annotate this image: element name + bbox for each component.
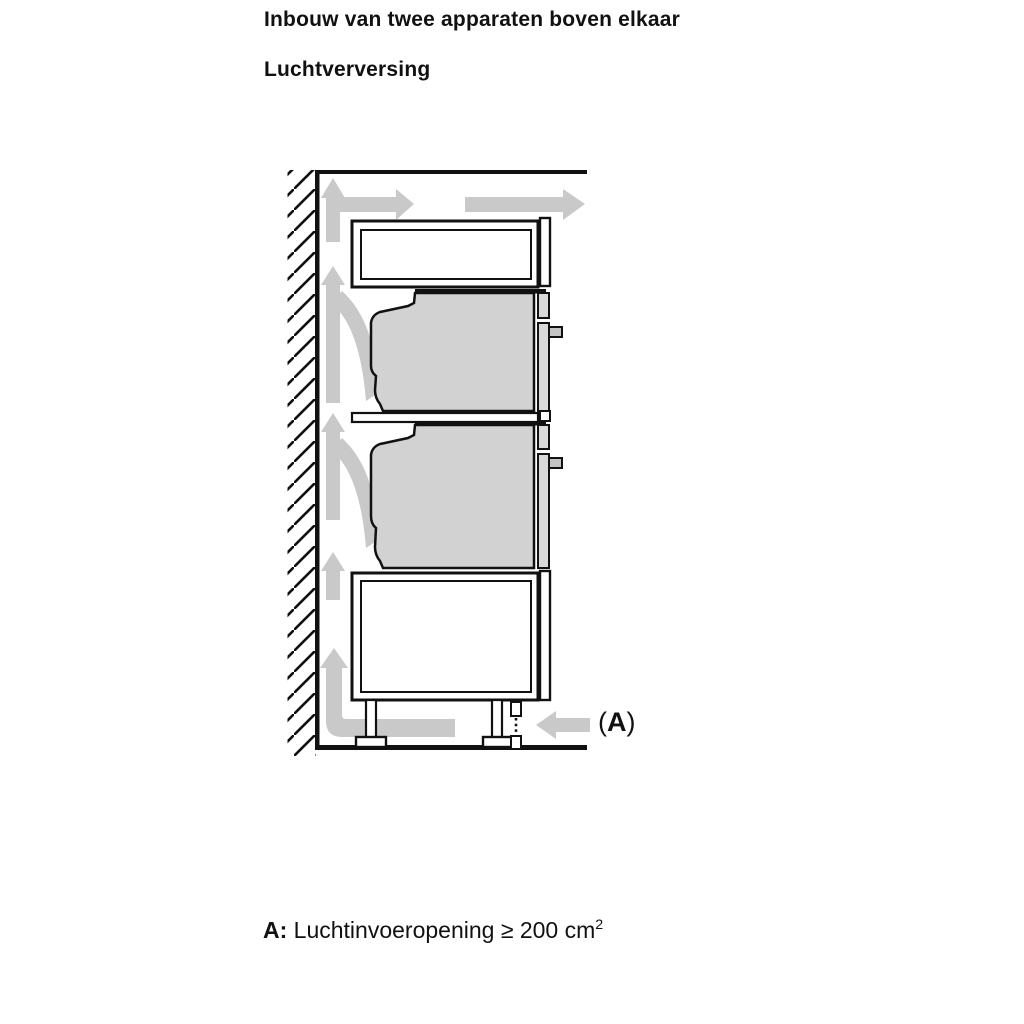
top-ventilation-compartment — [352, 218, 550, 287]
shelf-front-cap — [540, 411, 550, 421]
base-cabinet-inner — [361, 581, 531, 692]
right-foot — [483, 737, 513, 747]
lower-oven-top-edge — [415, 421, 546, 426]
manual-page: Inbouw van twee apparaten boven elkaar L… — [0, 0, 1024, 1024]
hatched-wall — [288, 170, 320, 756]
caption-prefix: A: — [263, 917, 287, 943]
worktop-line — [317, 170, 587, 174]
plinth-vent-top-block — [511, 702, 521, 716]
upper-oven-front-top — [538, 293, 549, 318]
label-a-letter: A — [607, 707, 627, 737]
base-cabinet-front-strip — [540, 571, 550, 700]
wall-face-line — [315, 170, 320, 750]
arrow-up-small-icon — [321, 552, 345, 600]
label-a-paren-close: ) — [627, 707, 636, 737]
right-leg — [492, 700, 502, 738]
caption-superscript: 2 — [595, 917, 603, 933]
lower-oven-front-top — [538, 425, 549, 449]
caption: A: Luchtinvoeropening ≥ 200 cm2 — [263, 917, 603, 944]
left-leg — [366, 700, 376, 738]
arrow-up-lower-icon — [321, 413, 345, 520]
installation-diagram — [0, 0, 1024, 1024]
left-foot — [356, 737, 386, 747]
upper-oven-body — [371, 293, 534, 411]
top-compartment-inner — [361, 230, 531, 279]
shelf-board — [352, 413, 538, 422]
caption-text: Luchtinvoeropening ≥ 200 cm — [287, 917, 595, 943]
wall-hatch-area — [288, 170, 316, 756]
arrow-right-long-icon — [465, 189, 585, 220]
lower-oven-front-door — [538, 454, 549, 568]
arrow-air-inlet-icon — [536, 711, 590, 739]
lower-oven-body — [371, 425, 534, 568]
arrow-right-top-icon — [340, 189, 414, 220]
plinth-vent-dashed — [511, 702, 521, 749]
label-a-paren-open: ( — [598, 707, 607, 737]
intermediate-shelf — [352, 411, 550, 422]
upper-oven — [371, 289, 562, 412]
upper-oven-handle — [549, 327, 562, 337]
label-a: (A) — [598, 707, 636, 738]
top-compartment-front-strip — [540, 218, 550, 286]
upper-oven-front-door — [538, 323, 549, 412]
upper-oven-top-edge — [415, 289, 546, 294]
lower-oven-handle — [549, 458, 562, 468]
lower-oven — [371, 421, 562, 568]
arrow-up-upper-icon — [321, 266, 345, 403]
plinth-vent-bottom-block — [511, 736, 521, 749]
